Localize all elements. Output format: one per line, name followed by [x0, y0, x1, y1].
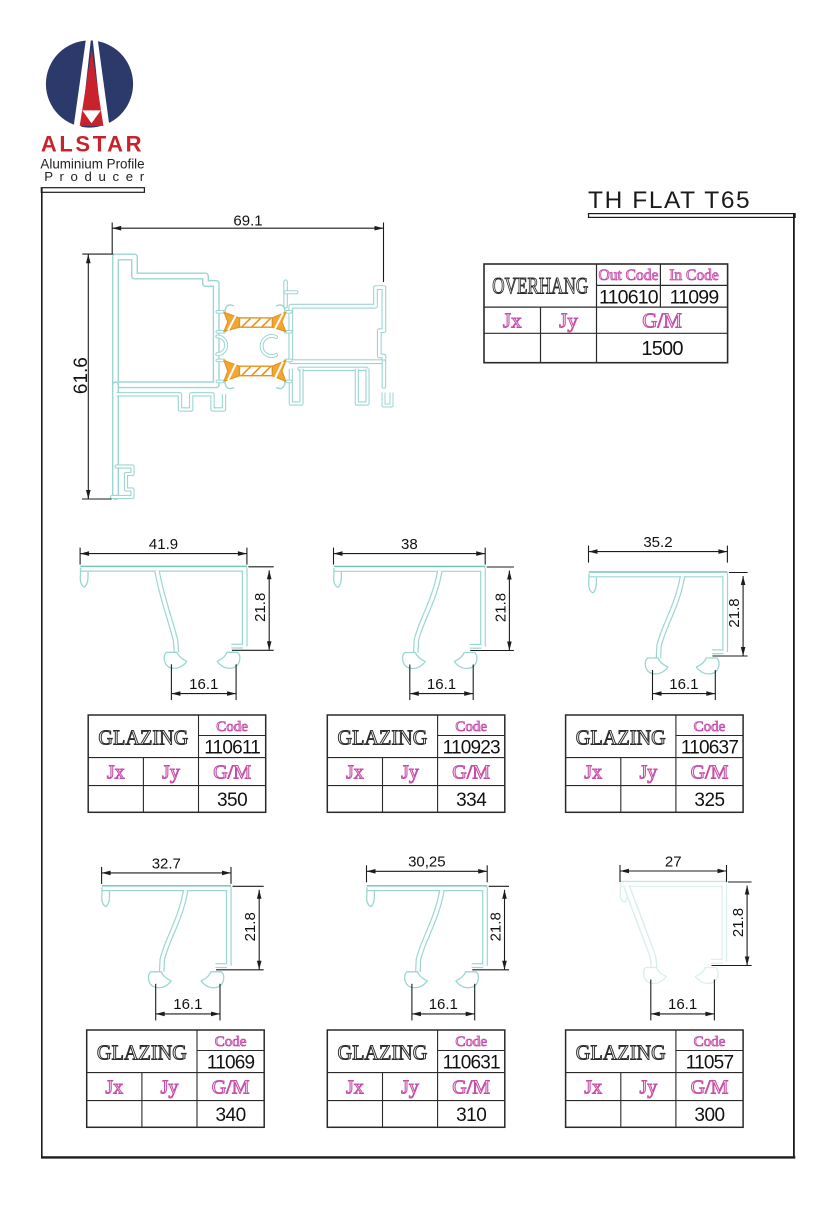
- svg-text:21.8: 21.8: [488, 912, 505, 941]
- svg-text:21.8: 21.8: [252, 593, 269, 622]
- svg-text:300: 300: [694, 1105, 724, 1126]
- svg-text:GLAZING: GLAZING: [337, 725, 427, 749]
- svg-text:334: 334: [456, 790, 487, 811]
- svg-text:Code: Code: [694, 719, 726, 735]
- svg-text:340: 340: [215, 1105, 245, 1126]
- svg-text:P r o d u c e r: P r o d u c e r: [44, 169, 145, 184]
- svg-text:G/M: G/M: [691, 762, 729, 784]
- svg-text:Out Code: Out Code: [599, 267, 659, 284]
- svg-text:G/M: G/M: [212, 1077, 250, 1099]
- svg-text:69.1: 69.1: [233, 212, 262, 229]
- svg-text:GLAZING: GLAZING: [97, 1040, 187, 1064]
- svg-text:Jx: Jx: [584, 762, 602, 784]
- svg-text:Code: Code: [455, 1034, 487, 1050]
- svg-text:11057: 11057: [686, 1053, 734, 1074]
- svg-text:16.1: 16.1: [427, 676, 456, 693]
- svg-text:11099: 11099: [670, 286, 719, 308]
- svg-text:16.1: 16.1: [668, 996, 697, 1013]
- svg-text:Jy: Jy: [559, 309, 578, 333]
- svg-text:21.8: 21.8: [242, 912, 259, 941]
- svg-text:Code: Code: [216, 719, 248, 735]
- svg-text:38: 38: [401, 536, 418, 553]
- svg-text:GLAZING: GLAZING: [576, 1040, 666, 1064]
- svg-text:Jy: Jy: [401, 1077, 419, 1099]
- svg-text:Code: Code: [215, 1034, 247, 1050]
- svg-text:110631: 110631: [443, 1053, 500, 1074]
- svg-text:G/M: G/M: [691, 1077, 729, 1099]
- svg-text:G/M: G/M: [452, 1077, 490, 1099]
- svg-text:110610: 110610: [599, 286, 659, 308]
- svg-text:Jx: Jx: [503, 309, 522, 333]
- svg-text:Jx: Jx: [107, 762, 125, 784]
- svg-text:GLAZING: GLAZING: [98, 725, 188, 749]
- svg-text:16.1: 16.1: [669, 676, 698, 693]
- svg-text:GLAZING: GLAZING: [337, 1040, 427, 1064]
- svg-text:30,25: 30,25: [408, 854, 446, 871]
- svg-text:Code: Code: [694, 1034, 726, 1050]
- svg-text:21.8: 21.8: [726, 598, 743, 627]
- svg-text:Jy: Jy: [161, 1077, 179, 1099]
- svg-text:32.7: 32.7: [152, 855, 181, 872]
- svg-text:Code: Code: [455, 719, 487, 735]
- svg-text:Jy: Jy: [401, 762, 419, 784]
- svg-text:350: 350: [217, 790, 247, 811]
- svg-text:Jy: Jy: [162, 762, 180, 784]
- svg-text:21.8: 21.8: [730, 908, 747, 937]
- svg-text:325: 325: [694, 790, 724, 811]
- svg-text:Jy: Jy: [639, 1077, 657, 1099]
- svg-text:G/M: G/M: [642, 309, 682, 333]
- svg-text:110637: 110637: [681, 738, 738, 759]
- svg-text:In Code: In Code: [669, 267, 719, 284]
- svg-text:21.8: 21.8: [492, 593, 509, 622]
- svg-text:Jx: Jx: [346, 1077, 364, 1099]
- svg-text:Jy: Jy: [639, 762, 657, 784]
- svg-text:1500: 1500: [641, 338, 683, 360]
- svg-text:GLAZING: GLAZING: [576, 725, 666, 749]
- svg-text:TH FLAT T65: TH FLAT T65: [588, 187, 751, 214]
- svg-text:35.2: 35.2: [643, 534, 672, 551]
- svg-text:G/M: G/M: [213, 762, 251, 784]
- svg-text:Jx: Jx: [105, 1077, 123, 1099]
- svg-text:16.1: 16.1: [189, 676, 218, 693]
- svg-text:G/M: G/M: [452, 762, 490, 784]
- svg-text:110923: 110923: [443, 738, 500, 759]
- svg-text:110611: 110611: [204, 738, 260, 759]
- svg-text:16.1: 16.1: [173, 996, 202, 1013]
- svg-text:ALSTAR: ALSTAR: [41, 132, 144, 157]
- svg-text:61.6: 61.6: [71, 357, 92, 394]
- svg-text:Jx: Jx: [584, 1077, 602, 1099]
- svg-text:27: 27: [665, 853, 682, 870]
- svg-text:Jx: Jx: [346, 762, 364, 784]
- svg-text:OVERHANG: OVERHANG: [492, 274, 588, 299]
- svg-text:11069: 11069: [207, 1053, 255, 1074]
- svg-text:41.9: 41.9: [149, 536, 178, 553]
- svg-text:310: 310: [456, 1105, 486, 1126]
- svg-text:16.1: 16.1: [429, 996, 458, 1013]
